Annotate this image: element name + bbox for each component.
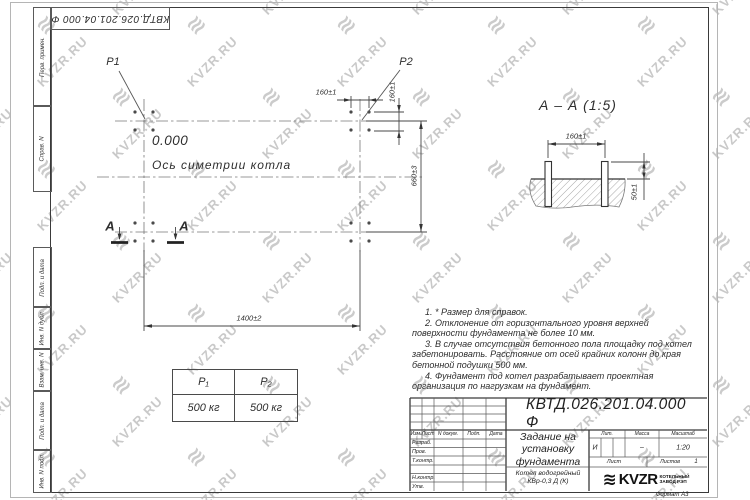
- row-utv: Утв.: [412, 484, 424, 490]
- loads-table-value-p2: 500 кг: [235, 395, 297, 421]
- col-n-dokum: N докум.: [438, 431, 458, 437]
- dim-text-160-vertical: 160±1: [388, 82, 397, 103]
- title-block-title: Задание на установку фундамента: [506, 431, 590, 468]
- leader-lines: [119, 70, 400, 120]
- plan-center-lines: [97, 99, 425, 252]
- section-view-title: А – А (1:5): [539, 97, 617, 113]
- scale-value: 1:20: [676, 445, 690, 452]
- lit-value: И: [592, 445, 597, 452]
- section-letter-right: А: [179, 219, 188, 234]
- drawing-sheet: KVZR.RU≋KVZR.RU≋KVZR.RU≋KVZR.RU≋KVZR.RU≋…: [0, 0, 750, 500]
- row-razrab: Разраб.: [412, 440, 432, 446]
- section-letter-left: А: [105, 219, 114, 234]
- dim-text-160-horizontal: 160±1: [316, 88, 337, 97]
- kvzr-logo-icon: ≋: [602, 471, 616, 488]
- row-tkontr: Т.контр.: [412, 458, 434, 464]
- note-4: 4. Фундамент под котел разрабатывает про…: [412, 371, 705, 392]
- sheet-label: Лист: [607, 459, 621, 465]
- sheets-count: 1: [694, 459, 697, 465]
- col-list: Лист: [422, 431, 435, 437]
- loads-table: P₁ P₂ 500 кг 500 кг: [172, 369, 298, 422]
- col-podp: Подп.: [467, 431, 480, 437]
- sec-dim-text-160: 160±1: [566, 132, 587, 141]
- note-1: 1. * Размер для справок.: [412, 307, 705, 318]
- kvzr-logo-text: KVZR: [619, 471, 658, 488]
- org-name: КОТЕЛЬНЫЙ ЗАВОД РЭП: [660, 474, 694, 485]
- dim-text-660: 660±3: [410, 166, 419, 187]
- mass-value: –: [640, 445, 644, 452]
- format-label: Формат А3: [656, 492, 689, 498]
- sheets-label: Листов: [660, 459, 680, 465]
- section-cut-marks: [111, 227, 184, 243]
- col-data: Дата: [489, 431, 502, 437]
- lit-label: Лит.: [601, 431, 613, 437]
- org-logo-cell: ≋ KVZR КОТЕЛЬНЫЙ ЗАВОД РЭП: [589, 467, 707, 491]
- anchor-bolt-dots: [133, 110, 370, 242]
- loads-table-value-p1: 500 кг: [173, 395, 235, 421]
- note-2: 2. Отклонение от горизонтального уровня …: [412, 318, 705, 339]
- loads-table-header-p2: P₂: [235, 370, 297, 395]
- note-3: 3. В случае отсутствия бетонного пола пл…: [412, 339, 705, 371]
- plan-point-p2-label: P2: [399, 56, 412, 68]
- boiler-symmetry-axis-label: Ось симетрии котла: [152, 158, 291, 172]
- scale-label: Масштаб: [671, 431, 694, 437]
- sec-dim-160: [548, 140, 605, 158]
- sec-dim-text-50: 50±1: [630, 184, 639, 201]
- loads-table-header-p1: P₁: [173, 370, 235, 395]
- plan-point-p1-label: P1: [106, 56, 119, 68]
- dim-text-1400: 1400±2: [237, 314, 262, 323]
- mass-label: Масса: [635, 431, 650, 437]
- section-concrete: [530, 179, 625, 208]
- elevation-mark: 0.000: [150, 133, 190, 148]
- technical-notes: 1. * Размер для справок. 2. Отклонение о…: [412, 307, 705, 392]
- row-prov: Пров.: [412, 449, 426, 455]
- row-nkontr: Н.контр.: [412, 475, 435, 481]
- title-block-product: Котел водогрейный КВр-0,3 Д (К): [506, 470, 590, 486]
- col-izm: Изм.: [411, 431, 422, 437]
- title-block-doc-number: КВТД.026.201.04.000 Ф: [526, 396, 686, 432]
